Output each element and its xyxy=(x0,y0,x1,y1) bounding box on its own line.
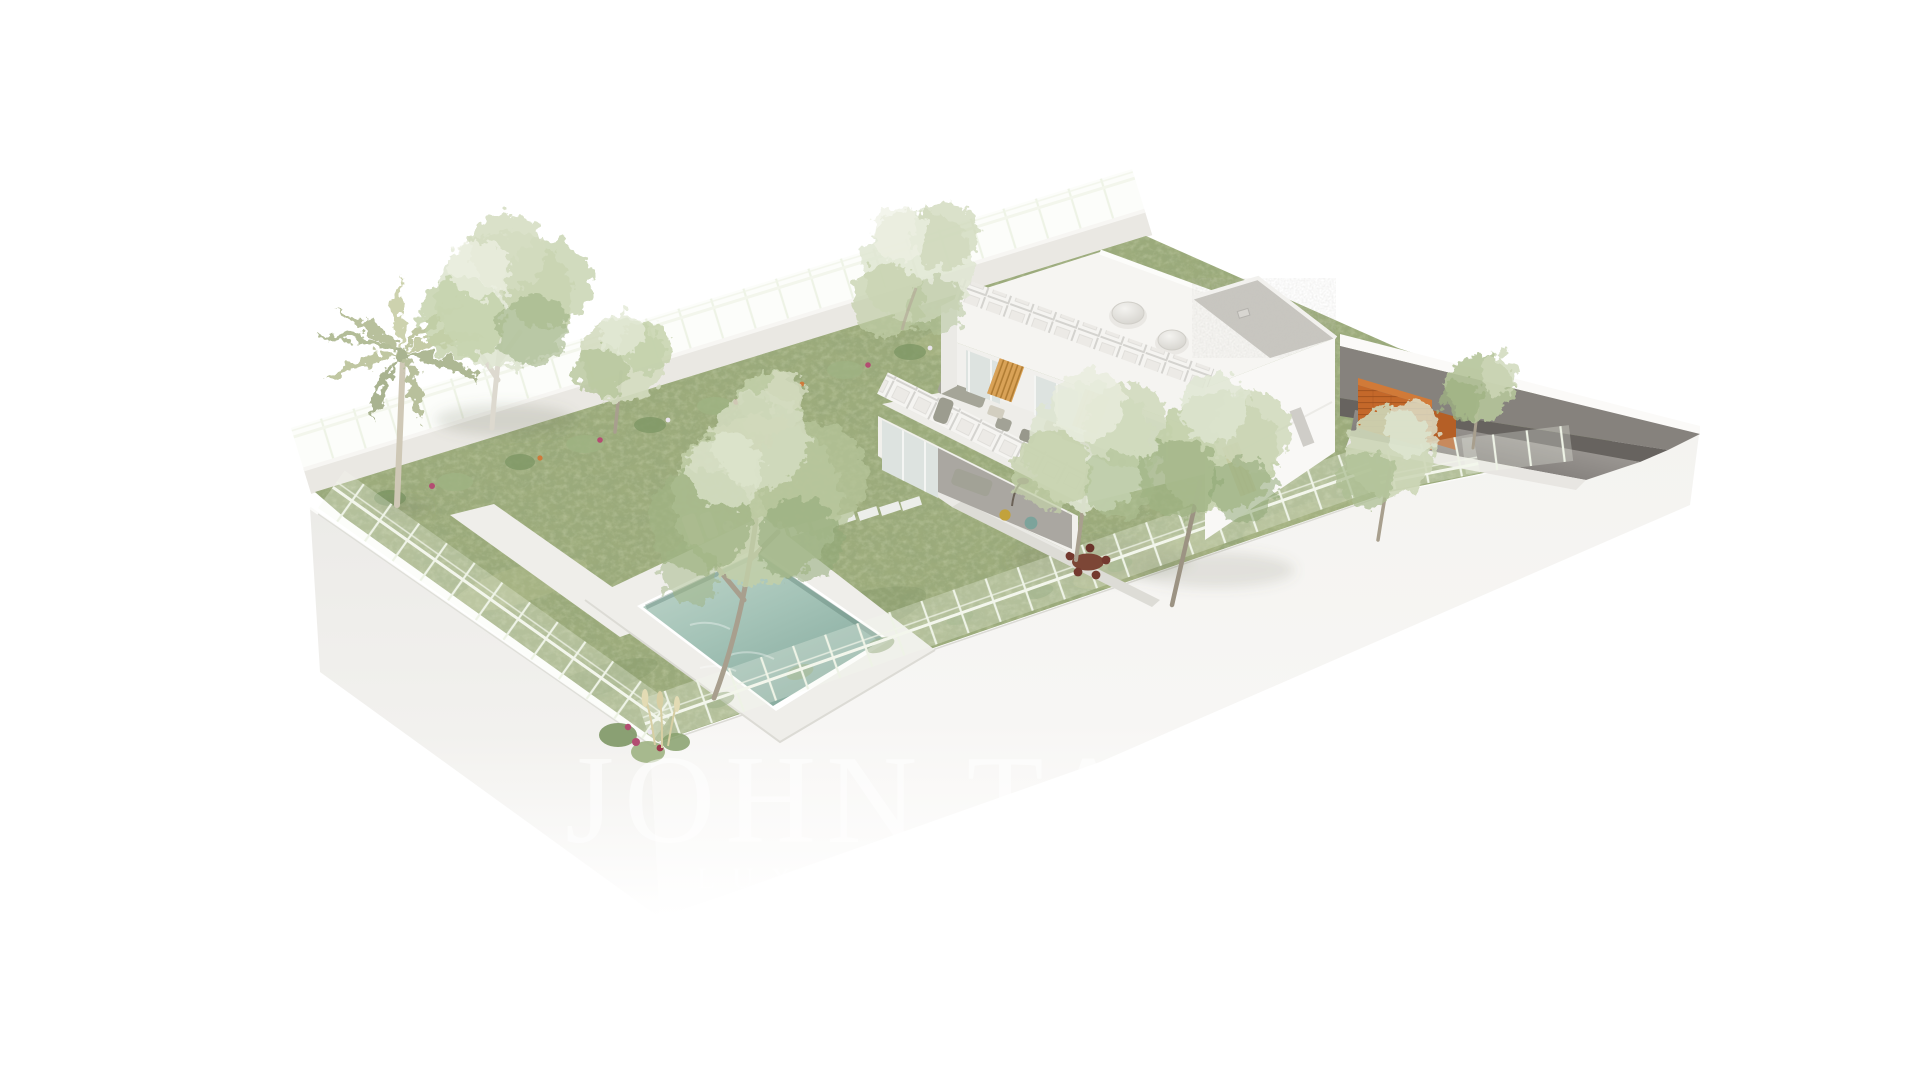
patio-lounge-chair xyxy=(1025,517,1038,530)
render-page: JOHN TA LUXUR xyxy=(0,0,1920,1080)
watermark-line2: LUXUR xyxy=(697,862,883,895)
terrace-tree xyxy=(852,202,978,336)
watermark-line1: JOHN TA xyxy=(565,731,1145,870)
villa-aerial-render: JOHN TA LUXUR xyxy=(0,0,1920,1080)
patio-pouf xyxy=(999,509,1010,520)
